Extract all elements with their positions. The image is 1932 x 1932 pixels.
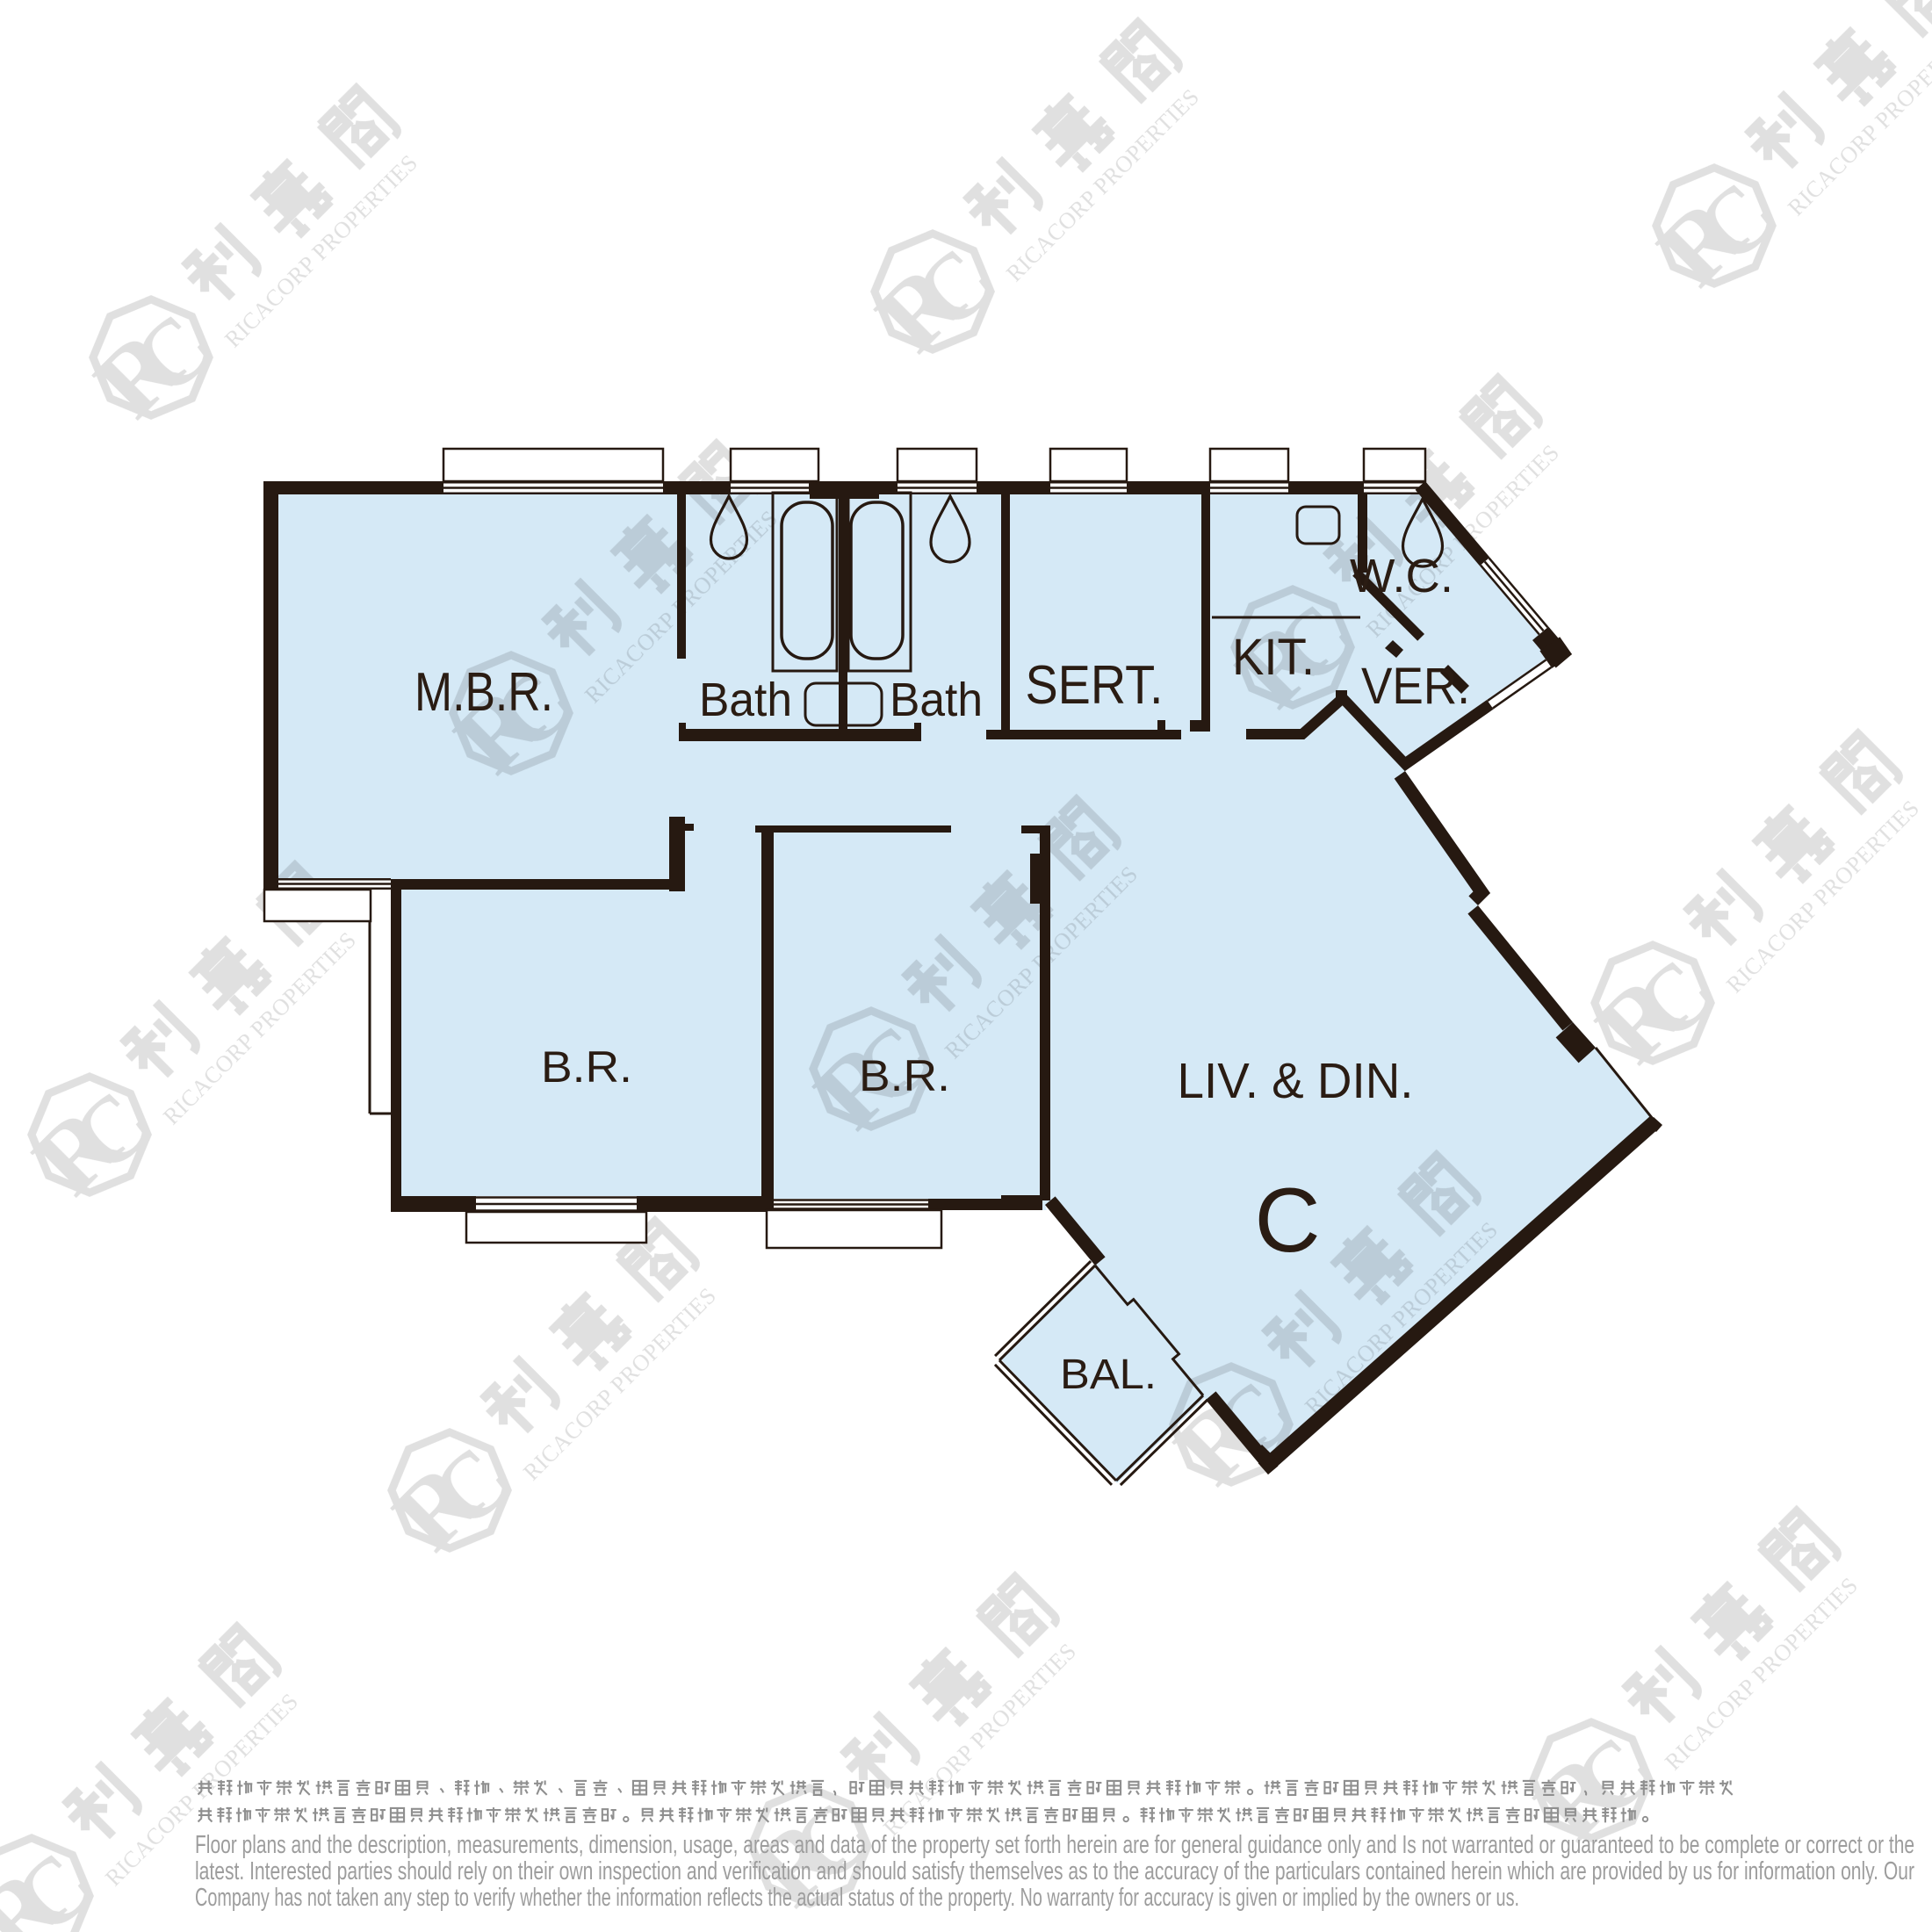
svg-text:Company has not taken any step: Company has not taken any step to verify… [195, 1884, 1519, 1912]
svg-text:M.B.R.: M.B.R. [415, 662, 553, 723]
svg-text:Floor plans and the descriptio: Floor plans and the description, measure… [195, 1831, 1914, 1859]
svg-text:W.C.: W.C. [1350, 550, 1453, 602]
svg-text:Bath: Bath [699, 674, 792, 726]
svg-text:Bath: Bath [890, 674, 983, 726]
svg-text:LIV. & DIN.: LIV. & DIN. [1178, 1053, 1414, 1109]
svg-text:SERT.: SERT. [1026, 655, 1164, 716]
svg-text:latest. Interested parties sho: latest. Interested parties should rely o… [195, 1857, 1914, 1885]
svg-text:B.R.: B.R. [859, 1051, 950, 1100]
svg-text:KIT.: KIT. [1232, 629, 1315, 686]
svg-text:VER.: VER. [1361, 658, 1470, 715]
svg-text:B.R.: B.R. [541, 1042, 632, 1092]
svg-text:BAL.: BAL. [1060, 1352, 1157, 1398]
svg-text:C: C [1254, 1170, 1320, 1272]
